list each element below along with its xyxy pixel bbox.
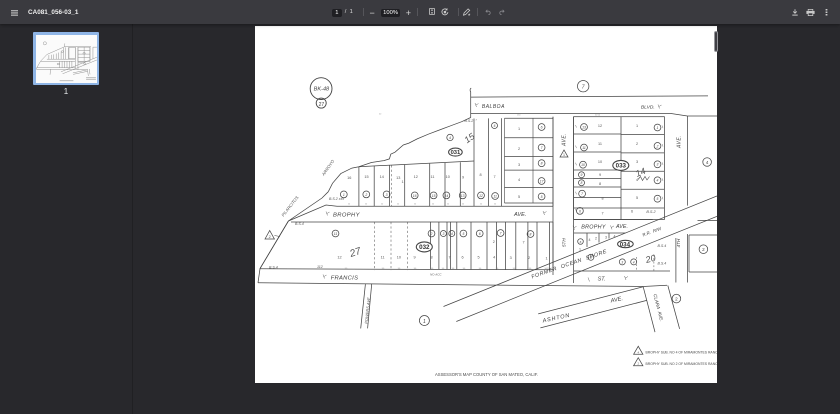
svg-text:B.S.4: B.S.4 — [658, 262, 667, 266]
svg-text:9: 9 — [599, 173, 601, 177]
svg-text:PILARCITOS: PILARCITOS — [280, 195, 299, 218]
svg-text:50: 50 — [447, 204, 450, 206]
svg-text:B.S.4: B.S.4 — [269, 266, 278, 270]
svg-text:1: 1 — [563, 153, 565, 157]
svg-text:13: 13 — [582, 125, 586, 129]
svg-text:11: 11 — [431, 175, 435, 179]
svg-text:ASSESSOR'S MAP COUNTY OF SAN M: ASSESSOR'S MAP COUNTY OF SAN MATEO, CALI… — [435, 372, 538, 377]
svg-text:50: 50 — [462, 204, 465, 206]
svg-text:13: 13 — [396, 176, 400, 180]
svg-text:150: 150 — [517, 115, 521, 117]
svg-text:2: 2 — [518, 147, 520, 151]
svg-text:031: 031 — [451, 150, 461, 156]
svg-text:11: 11 — [334, 232, 338, 236]
svg-text:2: 2 — [656, 144, 659, 148]
svg-text:5: 5 — [462, 232, 464, 236]
svg-text:9: 9 — [462, 176, 464, 180]
svg-text:AVE.: AVE. — [609, 296, 623, 305]
svg-text:8: 8 — [601, 197, 603, 201]
svg-text:6: 6 — [494, 124, 496, 128]
svg-text:2: 2 — [636, 142, 638, 146]
svg-text:5: 5 — [541, 195, 543, 199]
svg-text:NO ACC: NO ACC — [430, 273, 442, 277]
svg-text:7: 7 — [581, 192, 583, 196]
svg-text:BROPHY SUB. NO 4 OF MIRAMONTES: BROPHY SUB. NO 4 OF MIRAMONTES RANCH — [646, 351, 718, 355]
svg-text:12: 12 — [598, 124, 602, 128]
svg-text:11: 11 — [582, 146, 586, 150]
svg-text:50: 50 — [365, 204, 368, 206]
svg-text:10: 10 — [397, 256, 401, 260]
svg-text:16: 16 — [347, 176, 351, 180]
svg-text:6: 6 — [479, 232, 481, 236]
svg-text:17: 17 — [540, 179, 544, 183]
svg-text:AVE.: AVE. — [513, 212, 526, 218]
svg-text:10: 10 — [446, 175, 450, 179]
svg-text:2: 2 — [702, 247, 705, 252]
svg-text:2: 2 — [493, 240, 495, 244]
svg-text:50: 50 — [432, 204, 435, 206]
svg-text:7: 7 — [449, 256, 451, 260]
svg-text:7: 7 — [601, 212, 603, 216]
svg-text:2: 2 — [675, 297, 678, 302]
svg-text:50: 50 — [397, 204, 400, 206]
svg-text:8: 8 — [541, 162, 543, 166]
svg-text:3: 3 — [590, 256, 592, 260]
svg-text:8: 8 — [530, 232, 532, 236]
svg-text:10: 10 — [598, 160, 602, 164]
svg-text:4: 4 — [638, 350, 640, 354]
svg-text:12: 12 — [479, 194, 483, 198]
svg-text:1: 1 — [657, 126, 659, 130]
svg-text:B.S.2 ⌃: B.S.2 ⌃ — [465, 119, 478, 123]
svg-text:4: 4 — [657, 179, 659, 183]
svg-text:50: 50 — [480, 204, 483, 206]
svg-text:4: 4 — [449, 136, 451, 140]
svg-text:4: 4 — [493, 256, 495, 260]
svg-text:9: 9 — [581, 173, 583, 177]
svg-text:8: 8 — [479, 173, 481, 177]
svg-text:6: 6 — [579, 209, 581, 213]
svg-text:6: 6 — [462, 256, 464, 260]
svg-text:15: 15 — [432, 194, 436, 198]
svg-text:B.S.2: B.S.2 — [646, 210, 656, 214]
svg-text:3: 3 — [636, 160, 638, 164]
svg-text:3: 3 — [510, 256, 512, 260]
svg-text:AVE.: AVE. — [615, 224, 628, 230]
svg-text:27: 27 — [348, 246, 363, 260]
svg-text:50: 50 — [381, 204, 384, 206]
svg-text:1: 1 — [636, 124, 638, 128]
svg-text:FRANCIS: FRANCIS — [331, 275, 359, 281]
svg-text:50: 50 — [494, 204, 497, 206]
svg-text:3: 3 — [442, 232, 444, 236]
svg-text:27: 27 — [319, 102, 325, 108]
svg-text:4TH: 4TH — [676, 238, 681, 247]
svg-text:14: 14 — [445, 194, 449, 198]
svg-text:2: 2 — [595, 237, 597, 241]
svg-text:AVE.: AVE. — [677, 135, 683, 149]
svg-text:BROPHY SUB. NO 2 OF MIRAMONTES: BROPHY SUB. NO 2 OF MIRAMONTES RANCH — [646, 362, 718, 366]
svg-text:4: 4 — [614, 235, 616, 239]
svg-text:2: 2 — [430, 232, 433, 236]
svg-text:50: 50 — [348, 204, 351, 206]
svg-text:11: 11 — [493, 194, 497, 198]
svg-text:4: 4 — [706, 160, 709, 165]
svg-text:13: 13 — [461, 194, 465, 198]
svg-text:5TH: 5TH — [562, 238, 567, 247]
svg-text:CLARA AVE.: CLARA AVE. — [653, 294, 665, 322]
svg-text:12: 12 — [337, 256, 341, 260]
svg-text:4: 4 — [518, 178, 520, 182]
svg-text:BK-48: BK-48 — [314, 87, 330, 93]
svg-text:1: 1 — [423, 319, 426, 325]
svg-text:B.S.2 xxx: B.S.2 xxx — [329, 197, 344, 201]
svg-text:7: 7 — [493, 175, 495, 179]
svg-text:50 50: 50 50 — [595, 115, 601, 117]
svg-text:20: 20 — [643, 253, 656, 266]
svg-text:1: 1 — [579, 248, 581, 252]
svg-text:14: 14 — [380, 175, 384, 179]
svg-text:40: 40 — [379, 114, 382, 116]
svg-text:ST.: ST. — [598, 277, 606, 283]
svg-text:12: 12 — [414, 175, 418, 179]
svg-text:5: 5 — [518, 195, 520, 199]
svg-text:BROPHY: BROPHY — [581, 224, 606, 230]
svg-text:2: 2 — [528, 256, 530, 260]
svg-text:8: 8 — [599, 182, 601, 186]
svg-text:9: 9 — [413, 256, 415, 260]
svg-text:2: 2 — [638, 362, 640, 366]
svg-text:033: 033 — [616, 163, 627, 170]
svg-text:15: 15 — [364, 175, 368, 179]
svg-text:7: 7 — [500, 231, 502, 235]
svg-text:50: 50 — [414, 204, 417, 206]
svg-text:5: 5 — [636, 196, 638, 200]
svg-text:4: 4 — [451, 232, 453, 236]
svg-text:3: 3 — [657, 163, 659, 167]
svg-text:2: 2 — [269, 235, 271, 239]
svg-text:6: 6 — [631, 210, 633, 214]
svg-text:B.S.4: B.S.4 — [658, 244, 667, 248]
svg-text:ARROYO: ARROYO — [320, 158, 336, 177]
svg-text:1: 1 — [518, 127, 520, 131]
svg-text:7: 7 — [582, 84, 585, 90]
svg-text:10: 10 — [581, 163, 585, 167]
svg-text:5: 5 — [478, 256, 480, 260]
svg-text:11: 11 — [381, 256, 385, 260]
svg-text:5: 5 — [657, 197, 659, 201]
svg-text:8: 8 — [430, 256, 432, 260]
svg-text:11: 11 — [598, 142, 602, 146]
svg-text:032: 032 — [419, 244, 430, 251]
svg-text:1: 1 — [401, 180, 403, 184]
svg-text:4: 4 — [589, 238, 591, 242]
svg-text:1: 1 — [545, 256, 547, 260]
svg-text:BLVD.: BLVD. — [641, 105, 655, 111]
svg-text:BROPHY: BROPHY — [333, 213, 361, 219]
svg-text:B.S.4: B.S.4 — [295, 222, 304, 226]
svg-text:3: 3 — [386, 193, 388, 197]
svg-text:AVE.: AVE. — [562, 133, 568, 147]
svg-text:POWERS AVE: POWERS AVE — [364, 297, 372, 324]
svg-text:R.R. R/W: R.R. R/W — [642, 226, 663, 238]
svg-text:8: 8 — [581, 181, 583, 185]
svg-text:ASHTON: ASHTON — [541, 313, 571, 325]
svg-text:BALBOA: BALBOA — [482, 104, 505, 110]
svg-text:112: 112 — [317, 265, 323, 269]
svg-text:7: 7 — [541, 146, 543, 150]
svg-text:3: 3 — [518, 163, 520, 167]
svg-text:034: 034 — [620, 241, 631, 248]
svg-text:3: 3 — [621, 260, 623, 264]
svg-text:6: 6 — [580, 240, 582, 244]
svg-text:15: 15 — [462, 131, 477, 146]
svg-text:2: 2 — [364, 193, 367, 197]
svg-text:4: 4 — [633, 260, 635, 264]
svg-text:16: 16 — [413, 194, 417, 198]
svg-text:7: 7 — [523, 241, 525, 245]
svg-text:6: 6 — [541, 125, 543, 129]
svg-text:3: 3 — [605, 236, 607, 240]
